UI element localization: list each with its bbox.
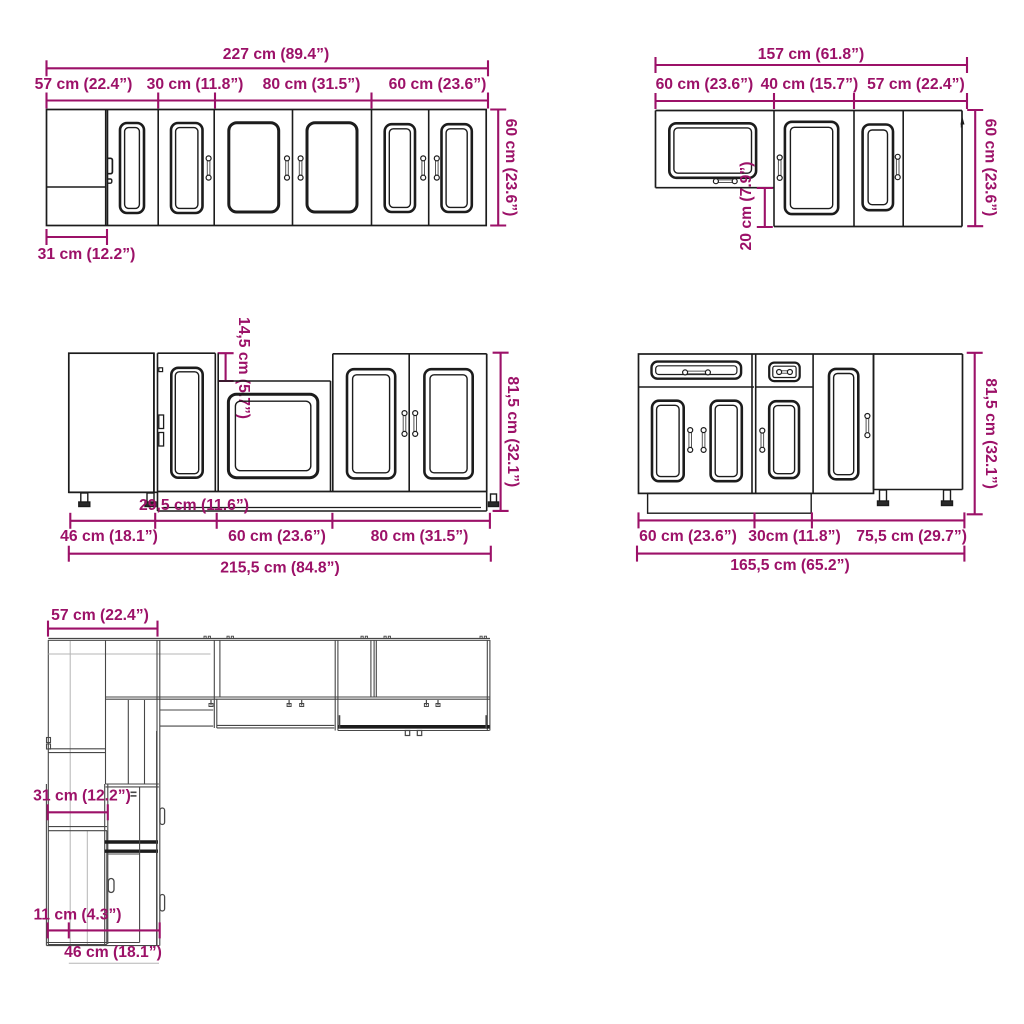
svg-text:80 cm (31.5”): 80 cm (31.5”) bbox=[371, 528, 469, 545]
svg-text:57 cm (22.4”): 57 cm (22.4”) bbox=[35, 76, 133, 93]
svg-text:46 cm (18.1”): 46 cm (18.1”) bbox=[60, 528, 158, 545]
svg-text:75,5 cm (29.7”): 75,5 cm (29.7”) bbox=[856, 528, 967, 545]
svg-text:165,5 cm (65.2”): 165,5 cm (65.2”) bbox=[730, 557, 849, 574]
svg-text:31 cm (12.2”): 31 cm (12.2”) bbox=[33, 787, 131, 804]
svg-text:57 cm (22.4”): 57 cm (22.4”) bbox=[51, 607, 149, 624]
svg-text:60 cm (23.6”): 60 cm (23.6”) bbox=[389, 76, 487, 93]
svg-text:60 cm (23.6”): 60 cm (23.6”) bbox=[982, 119, 999, 217]
svg-text:81,5 cm (32.1”): 81,5 cm (32.1”) bbox=[504, 376, 521, 487]
svg-text:80 cm (31.5”): 80 cm (31.5”) bbox=[263, 76, 361, 93]
svg-text:227 cm (89.4”): 227 cm (89.4”) bbox=[223, 46, 329, 63]
svg-text:30 cm (11.8”): 30 cm (11.8”) bbox=[147, 76, 244, 93]
svg-text:157 cm (61.8”): 157 cm (61.8”) bbox=[758, 46, 864, 63]
svg-text:60 cm (23.6”): 60 cm (23.6”) bbox=[228, 528, 326, 545]
svg-text:81,5 cm (32.1”): 81,5 cm (32.1”) bbox=[982, 378, 999, 489]
svg-text:57 cm (22.4”): 57 cm (22.4”) bbox=[867, 76, 965, 93]
svg-text:60 cm (23.6”): 60 cm (23.6”) bbox=[656, 76, 754, 93]
svg-text:60 cm (23.6”): 60 cm (23.6”) bbox=[502, 119, 519, 217]
svg-text:46 cm (18.1”): 46 cm (18.1”) bbox=[64, 944, 162, 961]
svg-text:30cm (11.8”): 30cm (11.8”) bbox=[748, 528, 840, 545]
svg-text:11 cm (4.3”): 11 cm (4.3”) bbox=[33, 906, 121, 923]
svg-text:29,5 cm (11.6”): 29,5 cm (11.6”) bbox=[139, 497, 249, 514]
svg-text:60 cm (23.6”): 60 cm (23.6”) bbox=[639, 528, 737, 545]
svg-text:20 cm (7.9”): 20 cm (7.9”) bbox=[738, 162, 755, 251]
svg-text:14,5 cm (5.7”): 14,5 cm (5.7”) bbox=[235, 317, 252, 419]
svg-text:40 cm (15.7”): 40 cm (15.7”) bbox=[761, 76, 859, 93]
svg-text:31 cm (12.2”): 31 cm (12.2”) bbox=[38, 246, 136, 263]
svg-text:215,5 cm (84.8”): 215,5 cm (84.8”) bbox=[220, 559, 339, 576]
